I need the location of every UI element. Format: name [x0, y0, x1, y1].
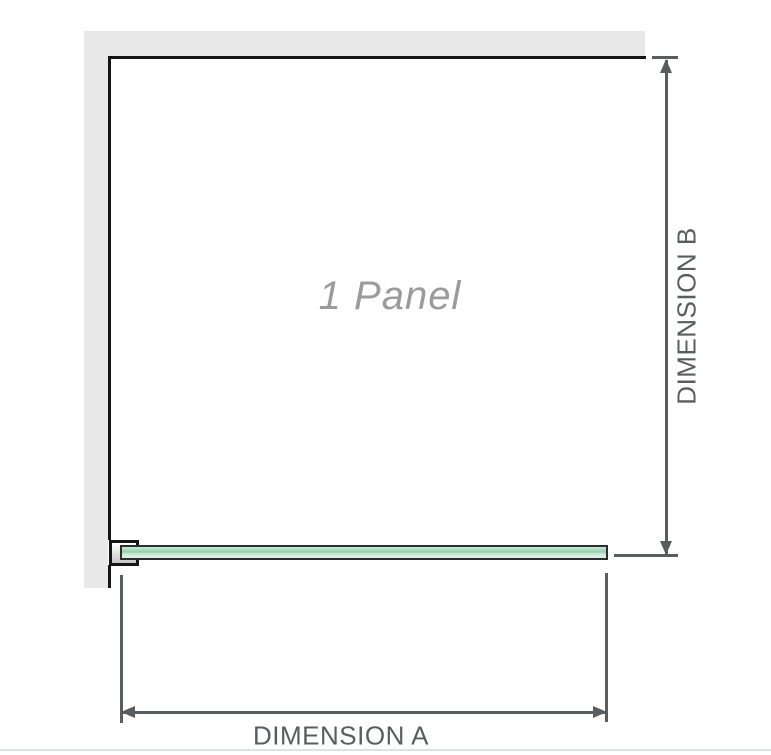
- wall-edge-left-line-upper: [108, 56, 111, 540]
- diagram-canvas: 1 Panel DIMENSION B DIMENSION A: [0, 0, 771, 755]
- dimension-a-label: DIMENSION A: [253, 721, 429, 752]
- glass-panel-plan-view: [120, 545, 608, 560]
- dimension-a-line: [121, 711, 607, 714]
- dimension-a-extension-right: [605, 573, 608, 722]
- wall-left-strip: [84, 31, 108, 588]
- arrow-up-icon: [660, 59, 672, 73]
- wall-edge-left-line-lower: [108, 565, 111, 588]
- wall-edge-top-line: [108, 56, 646, 59]
- wall-top-strip: [84, 31, 645, 56]
- dimension-b-line: [665, 60, 668, 554]
- dimension-b-label: DIMENSION B: [672, 227, 703, 404]
- arrow-right-icon: [593, 706, 607, 718]
- arrow-left-icon: [121, 706, 135, 718]
- arrow-down-icon: [660, 541, 672, 555]
- dimension-a-extension-left: [120, 575, 123, 723]
- bottom-divider: [0, 749, 771, 751]
- panel-label: 1 Panel: [260, 274, 520, 318]
